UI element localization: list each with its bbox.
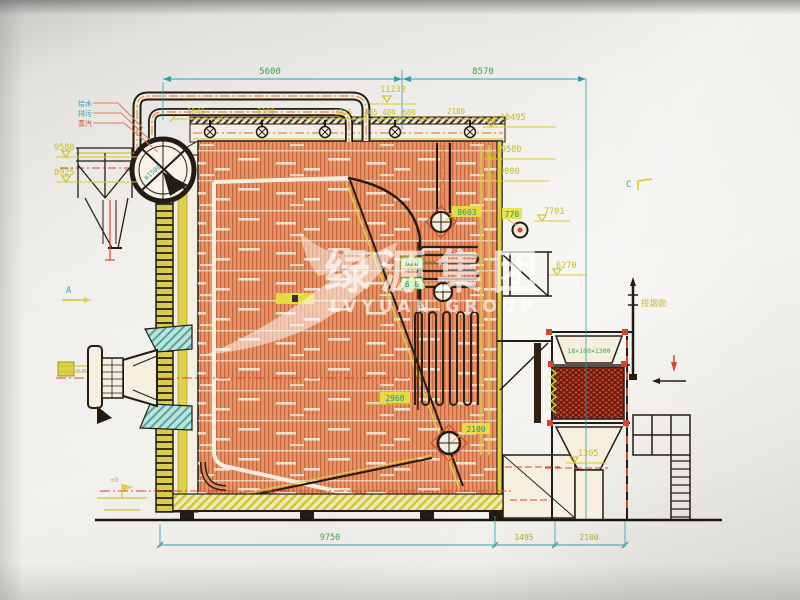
- label-2960: 2960: [385, 394, 404, 403]
- section-marker-c: C: [626, 180, 631, 190]
- dim-seg1: 1540: [187, 107, 206, 116]
- dim-9750: 9750: [320, 533, 340, 543]
- ground-datum: ±0: [97, 476, 147, 510]
- level-9580-right: 9580: [501, 145, 521, 155]
- eco-coil-block: [554, 367, 624, 419]
- front-membrane-wall: [156, 201, 173, 512]
- dim-seg2: 3100: [257, 107, 276, 116]
- refractory-block-lower: [140, 404, 192, 430]
- dim-span-right: 8570: [472, 67, 494, 77]
- dim-seg4: 465: [364, 108, 378, 117]
- eco-spec-label: 18×100×1300: [567, 347, 610, 355]
- access-ladder-platform: [633, 415, 690, 519]
- burner-bracket: [97, 406, 112, 424]
- dim-seg7: 2180: [447, 107, 466, 116]
- level-11230: 11230: [380, 85, 406, 95]
- rear-wall: [497, 141, 502, 515]
- burner-flange: [88, 346, 102, 408]
- section-bracket-c: [638, 179, 652, 190]
- dim-seg3: 1255: [334, 108, 352, 117]
- levels-left: 9580 8925: [54, 143, 138, 182]
- section-marker-a: A: [66, 286, 72, 296]
- feedwater-label: 给水: [78, 99, 92, 108]
- boiler-drawing-photo: φ1500 给水 排污 蒸汽: [0, 0, 800, 600]
- eco-downcomer-duct: [575, 470, 603, 520]
- label-8603: 8603: [457, 208, 476, 217]
- blowdown-label: 排污: [78, 109, 92, 118]
- dim-span-left: 5600: [259, 67, 281, 77]
- dim-1495: 1495: [514, 533, 533, 542]
- level-9080: 9080: [499, 167, 519, 177]
- flow-arrow-red: [671, 362, 677, 372]
- duct-hanger-plate: [534, 343, 541, 423]
- level-7701: 7701: [544, 207, 564, 217]
- steam-label: 蒸汽: [78, 119, 92, 128]
- level-10495: 10495: [500, 113, 526, 123]
- base-feet: [180, 511, 503, 519]
- boiler-drawing-svg: φ1500 给水 排污 蒸汽: [0, 0, 800, 600]
- label-770: 770: [505, 210, 520, 219]
- dim-seg6: 680: [402, 108, 416, 117]
- watermark-cn: 绿源集团: [324, 245, 548, 299]
- level-1305: 1305: [578, 449, 598, 459]
- refractory-block-upper: [145, 325, 192, 352]
- watermark-en: LVYUAN GROUP: [330, 297, 538, 317]
- air-duct-stub: [58, 362, 74, 376]
- section-arrow-a: [84, 297, 91, 303]
- chimney-label: 接烟囱: [641, 298, 667, 309]
- dim-2100: 2100: [579, 533, 598, 542]
- base-insulation-band: [173, 494, 503, 511]
- datum-label: ±0: [110, 476, 118, 484]
- label-2100-inner: 2100: [466, 425, 485, 434]
- drum-platform: [76, 148, 134, 248]
- dim-seg5: 480: [382, 108, 396, 117]
